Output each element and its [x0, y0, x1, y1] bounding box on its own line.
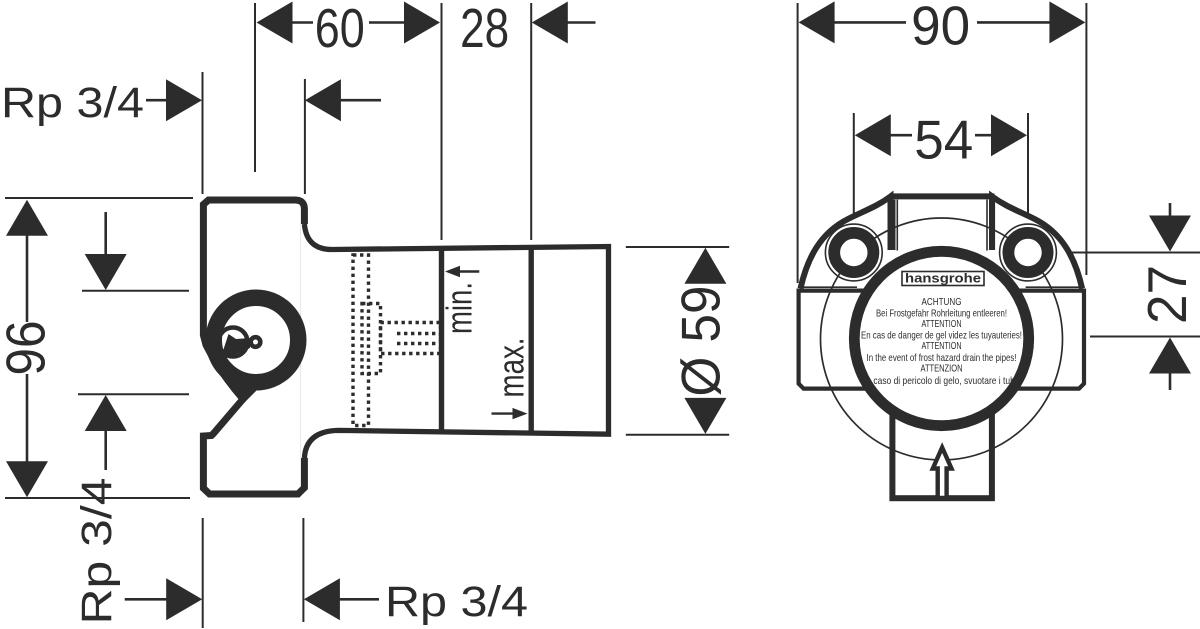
- svg-text:Ø 59: Ø 59: [670, 286, 732, 397]
- svg-text:Rp 3/4: Rp 3/4: [385, 578, 528, 626]
- svg-text:96: 96: [0, 321, 57, 376]
- svg-text:min.: min.: [439, 282, 480, 334]
- svg-text:ATTENTION: ATTENTION: [922, 319, 962, 330]
- svg-text:Bei Frostgefahr Rohrleitung en: Bei Frostgefahr Rohrleitung entleeren!: [876, 308, 1007, 319]
- svg-text:ATTENZION: ATTENZION: [921, 364, 963, 375]
- svg-text:In the event of frost hazard d: In the event of frost hazard drain the p…: [867, 353, 1017, 364]
- svg-text:28: 28: [460, 0, 509, 59]
- svg-text:ACHTUNG: ACHTUNG: [922, 297, 962, 308]
- svg-text:En cas de danger de gel videz: En cas de danger de gel videz les tuyaut…: [861, 330, 1022, 341]
- svg-text:60: 60: [315, 0, 365, 59]
- svg-text:In caso di pericolo di gelo, s: In caso di pericolo di gelo, svuotare i …: [864, 376, 1019, 387]
- svg-text:Rp 3/4: Rp 3/4: [73, 478, 121, 625]
- svg-text:max.: max.: [491, 338, 532, 398]
- svg-text:27: 27: [1136, 265, 1198, 324]
- svg-text:hansgrohe: hansgrohe: [905, 272, 981, 286]
- svg-text:90: 90: [911, 0, 970, 57]
- svg-text:54: 54: [914, 109, 973, 171]
- svg-text:ATTENTION: ATTENTION: [922, 341, 962, 352]
- svg-text:Rp 3/4: Rp 3/4: [1, 79, 144, 127]
